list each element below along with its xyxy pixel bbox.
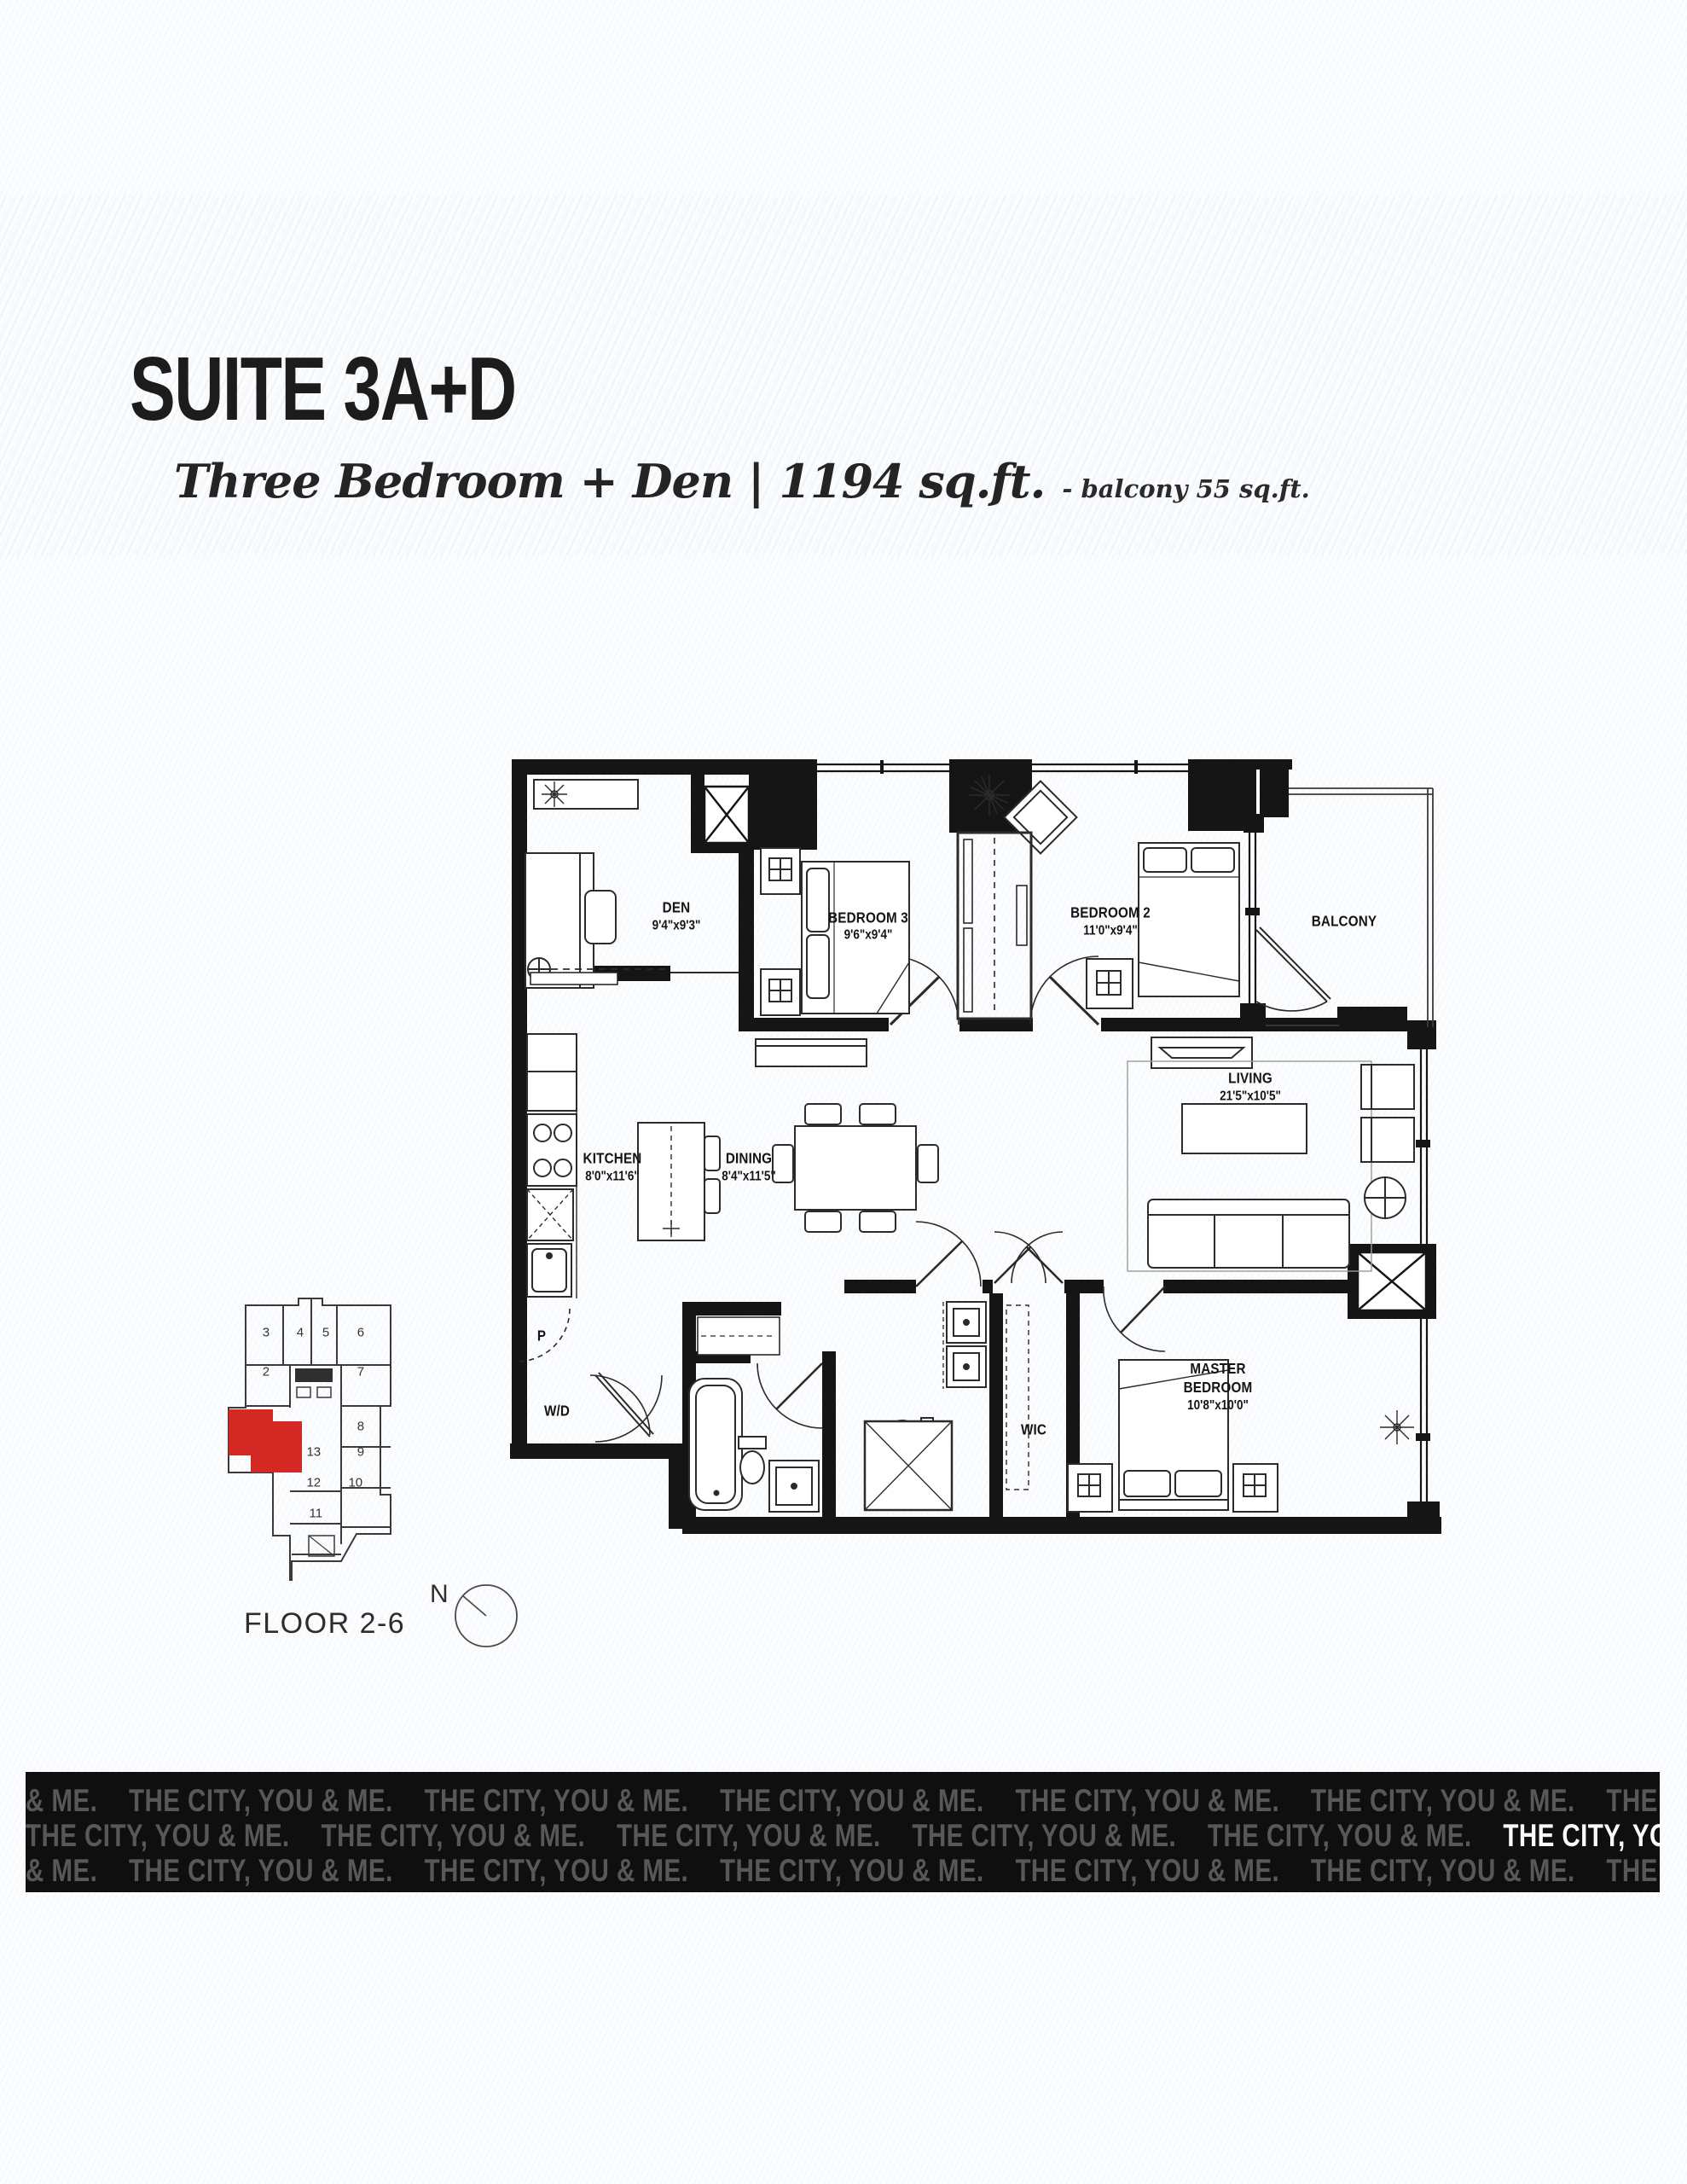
unit-number: 4: [297, 1326, 304, 1340]
brochure-page: SUITE 3A+D Three Bedroom + Den | 1194 sq…: [0, 0, 1687, 2184]
unit-number: 7: [357, 1365, 364, 1380]
banner-phrase: THE CITY, YOU & ME.: [26, 1818, 290, 1853]
room-dimensions: 8'0"x11'6": [583, 1168, 642, 1185]
room-label: BEDROOM 3 9'6"x9'4": [828, 908, 908, 944]
north-compass: N: [420, 1566, 530, 1660]
main-bath-fixtures: [689, 1317, 819, 1512]
key-plan: 3456278139121011: [222, 1280, 431, 1612]
unit-number: 11: [309, 1507, 322, 1521]
balcony-note: - balcony 55 sq.ft.: [1062, 474, 1309, 503]
banner-phrase: THE CITY, YOU & ME.: [129, 1783, 393, 1818]
floor-range-label: FLOOR 2-6: [244, 1607, 405, 1641]
room-name: W/D: [544, 1402, 570, 1421]
north-label: N: [430, 1580, 449, 1608]
room-dimensions: 8'4"x11'5": [722, 1168, 775, 1185]
room-label: BALCONY: [1311, 911, 1377, 931]
wic-fixtures: [1006, 1305, 1029, 1490]
banner-phrase: THE CITY, YOU & ME.: [617, 1818, 881, 1853]
floor-plan: DEN 9'4"x9'3" BEDROOM 3 9'6"x9'4" BEDROO…: [478, 706, 1450, 1542]
room-name: BALCONY: [1311, 911, 1377, 931]
banner-phrase: THE CITY, YOU & ME.: [321, 1818, 585, 1853]
banner-row-2: THE CITY, YOU & ME.THE CITY, YOU & ME.TH…: [26, 1818, 1660, 1853]
banner-phrase: THE CITY, YOU & ME.: [1503, 1818, 1660, 1853]
room-label: P: [537, 1327, 546, 1346]
unit-number: 12: [306, 1475, 321, 1490]
banner-phrase: THE CITY, YOU & ME.: [720, 1853, 984, 1888]
banner-phrase: THE CITY, YOU & ME.: [1208, 1818, 1472, 1853]
banner-phrase: THE CITY, YOU & ME.: [912, 1818, 1176, 1853]
banner-phrase: THE CITY, YOU & ME.: [1311, 1783, 1575, 1818]
unit-number: 6: [357, 1326, 364, 1340]
banner-phrase: THE CITY, YOU & ME.: [1015, 1853, 1279, 1888]
room-label: MASTER BEDROOM 10'8"x10'0": [1162, 1359, 1273, 1415]
suite-subtitle: Three Bedroom + Den | 1194 sq.ft.- balco…: [174, 454, 1310, 508]
unit-number: 10: [348, 1475, 362, 1490]
dining-furniture: [756, 1039, 938, 1232]
den-furniture: [525, 780, 638, 988]
banner-row-3: & ME.THE CITY, YOU & ME.THE CITY, YOU & …: [26, 1853, 1660, 1888]
room-name: LIVING: [1220, 1068, 1281, 1088]
room-label: W/D: [544, 1402, 570, 1421]
banner-phrase: THE CITY, YOU & ME.: [425, 1783, 689, 1818]
banner-phrase: & ME.: [26, 1853, 97, 1888]
unit-number: 9: [357, 1445, 364, 1460]
highlighted-suite: [229, 1409, 302, 1472]
page-title: SUITE 3A+D: [130, 338, 516, 441]
banner-phrase: THE CITY, YOU & ME.: [425, 1853, 689, 1888]
unit-number: 13: [306, 1445, 321, 1460]
hall-closet: [958, 833, 1031, 1019]
room-name: DINING: [722, 1149, 775, 1169]
ensuite-fixtures: [865, 1302, 986, 1510]
room-name: WIC: [1021, 1420, 1046, 1439]
room-dimensions: 21'5"x10'5": [1220, 1088, 1281, 1105]
room-label: LIVING 21'5"x10'5": [1220, 1068, 1281, 1105]
room-dimensions: 9'6"x9'4": [828, 927, 908, 944]
banner-row-1: & ME.THE CITY, YOU & ME.THE CITY, YOU & …: [26, 1783, 1660, 1818]
room-label: DINING 8'4"x11'5": [722, 1149, 775, 1186]
room-name: BEDROOM 3: [828, 908, 908, 927]
unit-number: 3: [263, 1326, 270, 1340]
room-name: MASTER BEDROOM: [1162, 1359, 1273, 1398]
banner-phrase: THE CITY, YOU & ME.: [1311, 1853, 1575, 1888]
room-dimensions: 10'8"x10'0": [1162, 1397, 1273, 1414]
floor-plan-drawing: [478, 706, 1450, 1542]
banner-phrase: THE CITY, YOU & ME.: [1015, 1783, 1279, 1818]
banner-phrase: & ME.: [26, 1783, 97, 1818]
banner-phrase: THE CITY, YOU & ME.: [1606, 1783, 1660, 1818]
balcony-railing: [1266, 788, 1433, 1027]
room-label: KITCHEN 8'0"x11'6": [583, 1149, 642, 1186]
banner-phrase: THE CITY, YOU & ME.: [1606, 1853, 1660, 1888]
brand-banner: & ME.THE CITY, YOU & ME.THE CITY, YOU & …: [26, 1772, 1660, 1892]
room-label: DEN 9'4"x9'3": [652, 898, 700, 935]
unit-number: 8: [357, 1419, 364, 1433]
room-name: KITCHEN: [583, 1149, 642, 1169]
room-label: WIC: [1021, 1420, 1046, 1439]
room-dimensions: 9'4"x9'3": [652, 917, 700, 934]
room-name: P: [537, 1327, 546, 1346]
unit-number: 5: [322, 1326, 329, 1340]
room-dimensions: 11'0"x9'4": [1070, 922, 1151, 939]
room-name: BEDROOM 2: [1070, 903, 1151, 922]
room-name: DEN: [652, 898, 700, 918]
suite-description: Three Bedroom + Den | 1194 sq.ft.: [174, 454, 1045, 508]
room-label: BEDROOM 2 11'0"x9'4": [1070, 903, 1151, 939]
unit-number: 2: [263, 1365, 270, 1380]
banner-phrase: THE CITY, YOU & ME.: [129, 1853, 393, 1888]
banner-phrase: THE CITY, YOU & ME.: [720, 1783, 984, 1818]
